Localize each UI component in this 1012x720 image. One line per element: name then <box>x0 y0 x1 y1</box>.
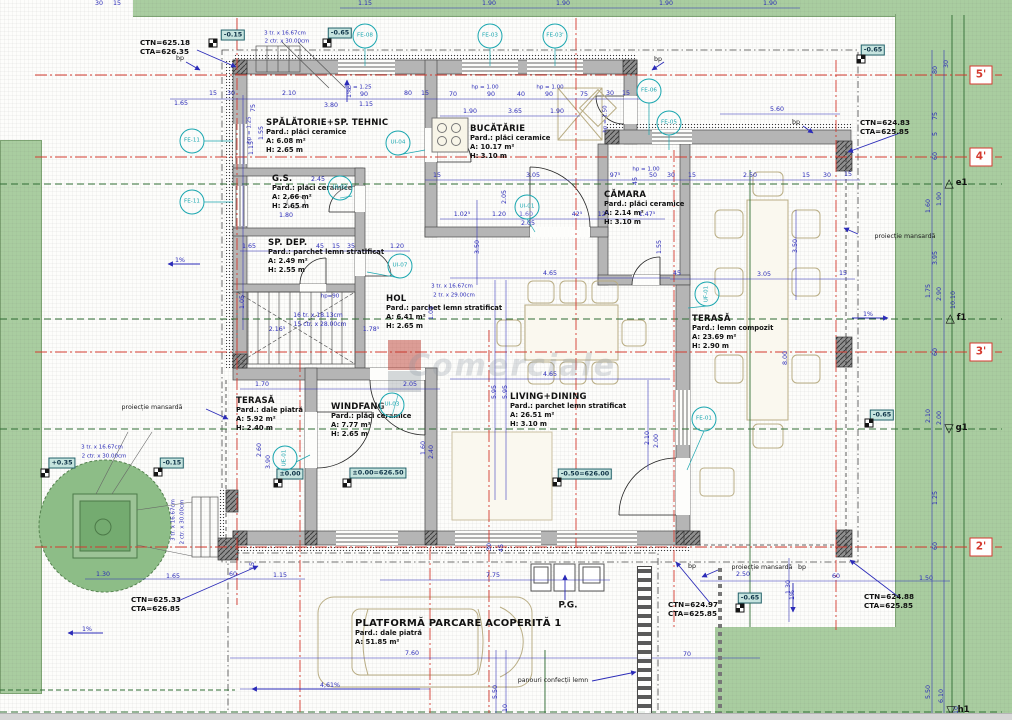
dimension-label: 2.10 <box>282 91 296 97</box>
bench-marker-label: e1 <box>956 179 968 188</box>
detail-circle-fe-01: FE-01 <box>692 407 717 432</box>
survey-point-icon <box>736 604 745 613</box>
room-floor: Pard.: parchet lemn stratificat <box>510 402 626 411</box>
dimension-label: 5.50 <box>493 685 499 699</box>
note-label: bp <box>654 57 662 63</box>
room-label: CĂMARAPard.: plăci ceramiceA: 2.14 m²H: … <box>604 190 684 228</box>
note-label: bp <box>688 564 696 570</box>
dimension-label: 4.65 <box>543 372 557 378</box>
triangle-down-icon: ▽ <box>944 422 953 434</box>
room-height: H: 2.65 m <box>266 146 388 155</box>
dimension-label: 15 <box>113 1 121 7</box>
dimension-label: 2.00 <box>654 434 660 448</box>
detail-circle-ui-02: UI-02 <box>328 176 353 201</box>
dimension-label: 3.05 <box>526 173 540 179</box>
room-name: SPĂLĂTORIE+SP. TEHNIC <box>266 118 388 128</box>
detail-circle-fe-08: FE-08 <box>353 24 378 49</box>
dimension-label: 2.16⁵ <box>269 327 286 333</box>
dimension-label: 2.45 <box>311 177 325 183</box>
detail-circle-ui-07: UI-07 <box>388 254 413 279</box>
note-label: 1% <box>82 627 92 633</box>
level-l1: CTN=624.97 <box>668 600 718 609</box>
dimension-label: 1.05 <box>429 306 435 320</box>
dimension-label: 1.90 <box>463 109 477 115</box>
detail-circle-ui-04: UI-04 <box>386 131 411 156</box>
survey-point-icon <box>209 39 218 48</box>
room-height: H: 2.65 m <box>272 202 352 211</box>
dimension-label: 80 <box>404 91 412 97</box>
annotation-layer: SPĂLĂTORIE+SP. TEHNICPard.: plăci cerami… <box>0 0 1012 720</box>
dimension-label: 1.90 <box>659 1 673 7</box>
note-label: 1% <box>175 258 185 264</box>
triangle-up-icon: △ <box>946 312 955 324</box>
dimension-label: 15 <box>622 91 630 97</box>
room-area: A: 5.92 m² <box>236 415 303 424</box>
elevation-badge: +0.35 <box>48 458 75 469</box>
dimension-label: 75 <box>251 104 257 112</box>
dimension-label: 90 <box>487 92 495 98</box>
dimension-label: 2.60 <box>257 443 263 457</box>
dimension-label: 80 <box>933 66 939 74</box>
room-name: BUCĂTĂRIE <box>470 124 550 134</box>
room-label: SP. DEP.Pard.: parchet lemn stratificatA… <box>268 238 384 276</box>
dimension-label: 5.95 <box>492 385 498 399</box>
axis-marker-5: 5' <box>970 66 993 85</box>
dimension-label: 1.60 <box>926 199 932 213</box>
room-area: A: 10.17 m² <box>470 143 550 152</box>
dimension-label: 1.20 <box>390 244 404 250</box>
elevation-badge: -0.15 <box>221 30 245 41</box>
level-label: CTN=624.88CTA=625.85 <box>864 592 914 611</box>
room-area: A: 2.49 m² <box>268 257 384 266</box>
note-label: bp <box>798 565 806 571</box>
dimension-label: 4.65 <box>543 271 557 277</box>
dimension-label: 45 <box>316 244 324 250</box>
detail-circle-ue-01: UE-01 <box>273 446 298 471</box>
dimension-label: 70 <box>683 652 691 658</box>
detail-circle-fe-11: FE-11 <box>180 129 205 154</box>
dimension-label: 2.05 <box>521 221 535 227</box>
dimension-label: 1.05 <box>240 295 246 309</box>
room-label: HOLPard.: parchet lemn stratificatA: 6.4… <box>386 294 502 332</box>
bottom-edge-strip <box>0 713 1012 720</box>
dimension-label: 7.60 <box>405 651 419 657</box>
room-height: H: 2.40 m <box>236 424 303 433</box>
dimension-label: 1.78⁵ <box>363 327 380 333</box>
level-label: CTN=625.33CTA=626.85 <box>131 595 181 614</box>
room-name: PLATFORMĂ PARCARE ACOPERITĂ 1 <box>355 618 562 629</box>
room-name: TERASĂ <box>236 396 303 406</box>
dimension-label: 1.30 <box>96 572 110 578</box>
dimension-label: 15 <box>332 244 340 250</box>
dimension-label: 15 <box>433 173 441 179</box>
dimension-label: 5.50 <box>926 685 932 699</box>
room-area: A: 6.08 m² <box>266 137 388 146</box>
note-label: proiecție mansardă <box>122 405 183 411</box>
dimension-label: 1.90 <box>763 1 777 7</box>
note-label: 4,61% <box>320 683 340 689</box>
note-label: 2 ctr. x 30.00cm <box>180 500 186 545</box>
dimension-label: 1.65 <box>166 574 180 580</box>
level-l1: CTN=625.33 <box>131 595 181 604</box>
dimension-label: 30 <box>487 543 493 551</box>
dimension-label: 45 <box>673 271 681 277</box>
note-label: hp = 1.25 <box>344 85 371 91</box>
note-label: 3 tr. x 16.67cm <box>81 445 123 451</box>
note-label: 16 tr. x 18.13cm <box>293 313 342 319</box>
detail-circle-fe-06: FE-06 <box>637 79 662 104</box>
dimension-label: 1.90 <box>556 1 570 7</box>
dimension-label: 1.70 <box>255 382 269 388</box>
dimension-label: 1.25 <box>933 491 939 505</box>
dimension-label: 60 <box>832 574 840 580</box>
survey-point-icon <box>857 55 866 64</box>
dimension-label: 1.50 <box>919 576 933 582</box>
room-area: A: 23.69 m² <box>692 333 773 342</box>
room-label: TERASĂPard.: dale piatrăA: 5.92 m²H: 2.4… <box>236 396 303 434</box>
dimension-label: 2.10 <box>645 431 651 445</box>
note-label: bp <box>176 56 184 62</box>
room-name: LIVING+DINING <box>510 392 626 402</box>
dimension-label: 1.75 <box>926 284 932 298</box>
dimension-label: 1.15 <box>273 573 287 579</box>
dimension-label: 45 <box>499 544 505 552</box>
room-name: CĂMARA <box>604 190 684 200</box>
room-floor: Pard.: parchet lemn stratificat <box>268 248 384 257</box>
dimension-label: 3.80 <box>324 103 338 109</box>
dimension-label: 1.55 <box>657 240 663 254</box>
dimension-label: 30 <box>823 173 831 179</box>
note-label: hp = 1.25 <box>247 116 253 143</box>
dimension-label: 15 <box>844 172 852 178</box>
dimension-label: 3.05 <box>757 272 771 278</box>
level-l2: CTA=625.85 <box>860 127 910 136</box>
dimension-label: 1.80 <box>279 213 293 219</box>
dimension-label: 5.60 <box>770 107 784 113</box>
room-height: H: 2.65 m <box>386 322 502 331</box>
note-label: hp = 1.50 <box>603 105 609 132</box>
dimension-label: 2.50 <box>736 572 750 578</box>
survey-point-icon <box>323 39 332 48</box>
dimension-label: 90 <box>545 92 553 98</box>
dimension-label: 40 <box>517 92 525 98</box>
note-label: 1% <box>790 590 796 600</box>
dimension-label: 8.00 <box>783 351 789 365</box>
dimension-label: 1.15 <box>359 102 373 108</box>
dimension-label: 6.10 <box>939 689 945 703</box>
room-height: H: 3.10 m <box>604 218 684 227</box>
room-height: H: 3.10 m <box>510 420 626 429</box>
survey-point-icon <box>343 479 352 488</box>
dimension-label: 2.90 <box>937 287 943 301</box>
elevation-badge: -0.15 <box>160 458 184 469</box>
detail-circle-fe-03': FE-03' <box>543 24 568 49</box>
dimension-label: 1.90 <box>550 109 564 115</box>
level-l2: CTA=625.85 <box>668 609 718 618</box>
survey-point-icon <box>154 468 163 477</box>
dimension-label: 3.50 <box>793 239 799 253</box>
note-label: 1% <box>863 312 873 318</box>
room-label: BUCĂTĂRIEPard.: plăci ceramiceA: 10.17 m… <box>470 124 550 162</box>
room-floor: Pard.: dale piatră <box>355 629 562 638</box>
dimension-label: 60 <box>933 542 939 550</box>
room-label: SPĂLĂTORIE+SP. TEHNICPard.: plăci cerami… <box>266 118 388 156</box>
note-label: hp=90 <box>321 294 340 300</box>
dimension-label: 3.95 <box>933 251 939 265</box>
detail-circle-uf-01: UF-01 <box>695 282 720 307</box>
room-area: A: 7.77 m² <box>331 421 411 430</box>
dimension-label: 30 <box>227 91 235 97</box>
dimension-label: 12⁵ <box>598 212 609 218</box>
dimension-label: 3.65 <box>508 109 522 115</box>
elevation-badge: ±0.00=626.50 <box>349 468 406 479</box>
note-label: 2 ctr. x 30.00cm <box>265 39 310 45</box>
dimension-label: 75 <box>933 112 939 120</box>
dimension-label: 45 <box>633 177 639 185</box>
dimension-label: 3.50 <box>475 240 481 254</box>
level-label: CTN=624.97CTA=625.85 <box>668 600 718 619</box>
dimension-label: 50 <box>649 173 657 179</box>
axis-marker-2: 2' <box>970 538 993 557</box>
dimension-label: 3.90 <box>266 455 272 469</box>
room-floor: Pard.: plăci ceramice <box>266 128 388 137</box>
room-area: A: 6.41 m² <box>386 313 502 322</box>
bench-marker-f1: △f1 <box>946 312 967 324</box>
dimension-label: 15 <box>839 271 847 277</box>
level-l1: CTN=625.18 <box>140 38 190 47</box>
dimension-label: 15 <box>421 91 429 97</box>
room-name: SP. DEP. <box>268 238 384 248</box>
detail-circle-fe-03: FE-03 <box>478 24 503 49</box>
dimension-label: 1.90 <box>482 1 496 7</box>
room-area: A: 51.85 m² <box>355 638 562 647</box>
dimension-label: 70 <box>449 92 457 98</box>
note-label: 15 ctr. x 28.00cm <box>294 322 347 328</box>
room-floor: Pard.: parchet lemn stratificat <box>386 304 502 313</box>
floor-plan-screenshot: Comerciale SPĂLĂTORIE+SP. TEHNICPard.: p… <box>0 0 1012 720</box>
dimension-label: 2.40 <box>429 445 435 459</box>
level-l2: CTA=626.85 <box>131 604 181 613</box>
bench-marker-label: f1 <box>957 314 967 323</box>
dimension-label: 1.15 <box>358 1 372 7</box>
dimension-label: 35 <box>347 244 355 250</box>
note-label: 3 tr. x 16.67cm <box>431 284 473 290</box>
level-l1: CTN=624.88 <box>864 592 914 601</box>
room-area: A: 26.51 m² <box>510 411 626 420</box>
dimension-label: 60 <box>229 572 237 578</box>
dimension-label: 30 <box>95 1 103 7</box>
room-floor: Pard.: lemn compozit <box>692 324 773 333</box>
dimension-label: 1.20 <box>492 212 506 218</box>
dimension-label: 1.65 <box>174 101 188 107</box>
axis-marker-4: 4' <box>970 148 993 167</box>
survey-point-icon <box>41 469 50 478</box>
level-l2: CTA=625.85 <box>864 601 914 610</box>
room-floor: Pard.: plăci ceramice <box>470 134 550 143</box>
dimension-label: 1.90 <box>937 192 943 206</box>
note-label: hp = 1.00 <box>632 167 659 173</box>
elevation-badge: -0.65 <box>328 28 352 39</box>
level-label: CTN=624.83CTA=625.85 <box>860 118 910 137</box>
dimension-label: 15 <box>688 173 696 179</box>
survey-point-icon <box>865 419 874 428</box>
axis-marker-3: 3' <box>970 343 993 362</box>
dimension-label: 1.60 <box>421 441 427 455</box>
detail-circle-fe-05: FE-05 <box>657 111 682 136</box>
dimension-label: 15 <box>250 562 256 570</box>
dimension-label: 1.02⁵ <box>454 212 471 218</box>
bench-marker-e1: △e1 <box>945 177 968 189</box>
dimension-label: 2.10 <box>926 409 932 423</box>
dimension-label: 30 <box>667 173 675 179</box>
note-label: 3 tr. x 16.67cm <box>264 31 306 37</box>
detail-circle-ui-01: UI-01 <box>515 195 540 220</box>
dimension-label: 2.50 <box>743 173 757 179</box>
bench-marker-label: g1 <box>956 424 968 433</box>
dimension-label: 2.00 <box>937 411 943 425</box>
note-label: hp = 1.00 <box>471 85 498 91</box>
survey-point-icon <box>553 478 562 487</box>
dimension-label: 2.05 <box>502 190 508 204</box>
room-height: H: 2.90 m <box>692 342 773 351</box>
note-label: panouri confecții lemn <box>518 678 589 684</box>
survey-point-icon <box>274 479 283 488</box>
room-height: H: 2.65 m <box>331 430 411 439</box>
note-label: 2 tr. x 29.00cm <box>433 293 475 299</box>
room-name: TERASĂ <box>692 314 773 324</box>
triangle-up-icon: △ <box>945 177 954 189</box>
dimension-label: 60 <box>933 152 939 160</box>
dimension-label: 1.47⁵ <box>639 212 656 218</box>
dimension-label: 30 <box>944 60 950 68</box>
dimension-label: 30 <box>606 91 614 97</box>
level-l2: CTA=626.35 <box>140 47 190 56</box>
note-label: 3 tr. x 16.67cm <box>171 499 177 541</box>
dimension-label: 15 <box>802 173 810 179</box>
dimension-label: 1.55 <box>259 126 265 140</box>
room-height: H: 3.10 m <box>470 152 550 161</box>
dimension-label: 5 <box>933 132 939 136</box>
note-label: proiecție mansardă <box>732 565 793 571</box>
bench-marker-g1: ▽g1 <box>944 422 967 434</box>
note-label: bp <box>792 120 800 126</box>
room-floor: Pard.: plăci ceramice <box>604 200 684 209</box>
dimension-label: 2.05 <box>403 382 417 388</box>
room-label: TERASĂPard.: lemn compozitA: 23.69 m²H: … <box>692 314 773 352</box>
dimension-label: 75 <box>580 92 588 98</box>
dimension-label: 60 <box>933 348 939 356</box>
note-label: P.G. <box>558 602 577 611</box>
dimension-label: 10 <box>503 704 509 712</box>
note-label: proiecție mansardă <box>875 234 936 240</box>
elevation-badge: -0.50=626.00 <box>558 469 612 480</box>
note-label: hp = 1.00 <box>536 85 563 91</box>
room-height: H: 2.55 m <box>268 266 384 275</box>
detail-circle-ui-03: UI-03 <box>380 393 405 418</box>
elevation-badge: -0.65 <box>738 593 762 604</box>
dimension-label: 7.75 <box>486 573 500 579</box>
dimension-label: 42⁵ <box>572 212 583 218</box>
dimension-label: 97⁵ <box>610 173 621 179</box>
note-label: 2 ctr. x 30.00cm <box>82 454 127 460</box>
detail-circle-fe-11: FE-11 <box>180 190 205 215</box>
room-label: LIVING+DININGPard.: parchet lemn stratif… <box>510 392 626 430</box>
level-l1: CTN=624.83 <box>860 118 910 127</box>
dimension-label: 10.10 <box>951 291 957 309</box>
room-floor: Pard.: dale piatră <box>236 406 303 415</box>
dimension-label: 15 <box>209 91 217 97</box>
dimension-label: 1.65 <box>242 244 256 250</box>
dimension-label: 90 <box>360 92 368 98</box>
dimension-label: 5.95 <box>503 385 509 399</box>
level-label: CTN=625.18CTA=626.35 <box>140 38 190 57</box>
room-label: PLATFORMĂ PARCARE ACOPERITĂ 1Pard.: dale… <box>355 618 562 647</box>
